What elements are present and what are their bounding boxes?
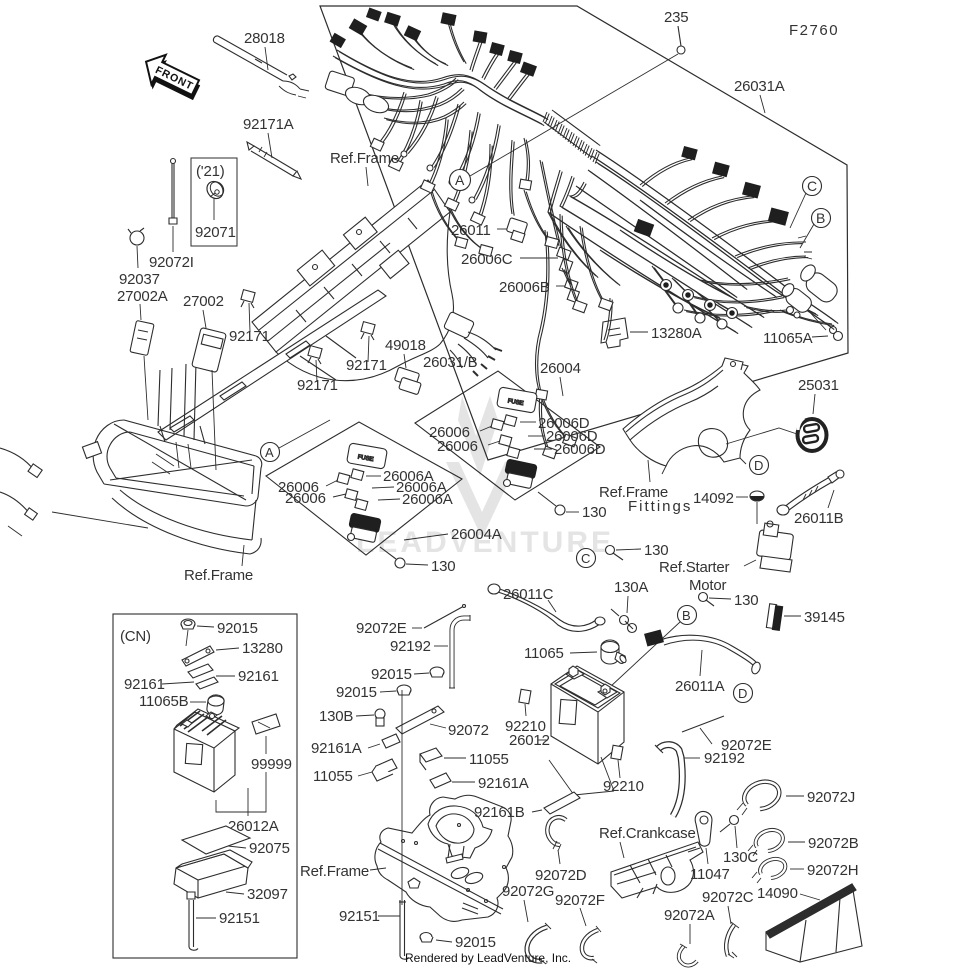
svg-text:92072E: 92072E [356,620,407,637]
svg-text:A: A [265,445,274,460]
svg-text:92161A: 92161A [311,740,362,757]
svg-text:26006A: 26006A [402,491,453,508]
svg-text:235: 235 [664,9,688,26]
svg-text:92072B: 92072B [808,835,859,852]
svg-text:92072I: 92072I [149,254,194,271]
svg-text:11047: 11047 [690,866,730,883]
svg-text:26011B: 26011B [794,510,844,527]
svg-text:25031: 25031 [798,377,839,394]
svg-text:92072H: 92072H [807,862,858,879]
svg-text:14092: 14092 [693,490,734,507]
svg-text:Fittings: Fittings [628,498,692,515]
svg-text:130: 130 [582,504,606,521]
svg-text:92161B: 92161B [474,804,525,821]
svg-text:92037: 92037 [119,271,160,288]
svg-text:D: D [754,458,763,473]
svg-text:92171: 92171 [297,377,338,394]
svg-text:92015: 92015 [371,666,412,683]
svg-text:11065: 11065 [524,645,564,662]
svg-text:26012: 26012 [509,732,550,749]
svg-text:26031/B: 26031/B [423,354,478,371]
svg-text:26004: 26004 [540,360,581,377]
svg-text:27002: 27002 [183,293,224,310]
svg-text:11065A: 11065A [763,330,813,347]
svg-text:27002A: 27002A [117,288,168,305]
svg-text:92015: 92015 [336,684,377,701]
svg-text:92210: 92210 [603,778,644,795]
svg-text:Ref.Frame: Ref.Frame [184,567,253,584]
svg-text:130C: 130C [723,849,758,866]
svg-text:130A: 130A [614,579,648,596]
svg-text:B: B [816,210,825,226]
svg-text:92072: 92072 [448,722,489,739]
svg-text:Ref.Crankcase: Ref.Crankcase [599,825,696,842]
svg-text:14090: 14090 [757,885,798,902]
svg-text:92072C: 92072C [702,889,754,906]
svg-text:92171A: 92171A [243,116,294,133]
svg-text:92171: 92171 [229,328,270,345]
svg-text:92192: 92192 [390,638,431,655]
svg-text:92075: 92075 [249,840,290,857]
svg-text:92151: 92151 [219,910,260,927]
svg-text:92151: 92151 [339,908,380,925]
svg-text:92071: 92071 [195,224,236,241]
svg-text:D: D [738,686,747,701]
svg-text:13280: 13280 [242,640,283,657]
svg-text:92161A: 92161A [478,775,529,792]
svg-text:92161: 92161 [238,668,279,685]
svg-text:26011C: 26011C [503,586,554,603]
svg-text:A: A [455,172,465,188]
svg-text:92161: 92161 [124,676,165,693]
svg-text:28018: 28018 [244,30,285,47]
svg-text:92072G: 92072G [502,883,554,900]
svg-text:26031A: 26031A [734,78,785,95]
svg-text:39145: 39145 [804,609,845,626]
svg-text:Ref.Frame: Ref.Frame [300,863,369,880]
svg-text:92015: 92015 [217,620,258,637]
svg-text:130: 130 [644,542,668,559]
svg-text:Rendered by LeadVenture, Inc.: Rendered by LeadVenture, Inc. [405,951,571,965]
svg-text:26004A: 26004A [451,526,502,543]
svg-text:92015: 92015 [455,934,496,951]
svg-text:11055: 11055 [469,751,509,768]
svg-text:130: 130 [734,592,758,609]
svg-text:11065B: 11065B [139,693,189,710]
svg-text:(CN): (CN) [120,628,151,645]
svg-text:130: 130 [431,558,455,575]
svg-text:Ref.Starter: Ref.Starter [659,559,730,576]
svg-text:130B: 130B [319,708,353,725]
svg-text:F2760: F2760 [789,22,839,39]
svg-text:13280A: 13280A [651,325,702,342]
svg-text:C: C [581,551,590,566]
svg-text:B: B [682,608,690,623]
svg-text:49018: 49018 [385,337,426,354]
svg-text:26006B: 26006B [499,279,550,296]
svg-text:32097: 32097 [247,886,288,903]
svg-text:C: C [807,178,817,194]
svg-text:92072F: 92072F [555,892,605,909]
svg-text:92072A: 92072A [664,907,715,924]
svg-text:11055: 11055 [313,768,353,785]
svg-text:Motor: Motor [689,577,727,594]
svg-text:92072D: 92072D [535,867,587,884]
svg-text:26006D: 26006D [554,441,606,458]
svg-text:('21): ('21) [196,163,225,180]
svg-text:92072J: 92072J [807,789,855,806]
svg-text:26011A: 26011A [675,678,725,695]
svg-text:92171: 92171 [346,357,387,374]
svg-text:99999: 99999 [251,756,292,773]
svg-text:92192: 92192 [704,750,745,767]
svg-text:26006: 26006 [437,438,478,455]
svg-text:Ref.Frame: Ref.Frame [330,150,399,167]
svg-text:26006: 26006 [285,490,326,507]
